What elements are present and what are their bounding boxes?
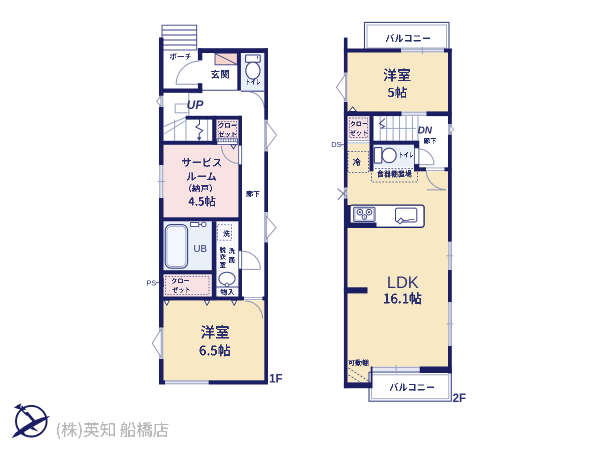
svg-text:UB: UB <box>193 244 206 255</box>
svg-text:DN: DN <box>418 125 433 136</box>
svg-text:2F: 2F <box>453 393 466 405</box>
svg-text:PS: PS <box>146 278 156 287</box>
svg-text:UP: UP <box>187 98 205 112</box>
svg-text:1F: 1F <box>269 374 282 386</box>
svg-text:LDK: LDK <box>387 274 419 292</box>
svg-text:DS: DS <box>331 140 341 149</box>
